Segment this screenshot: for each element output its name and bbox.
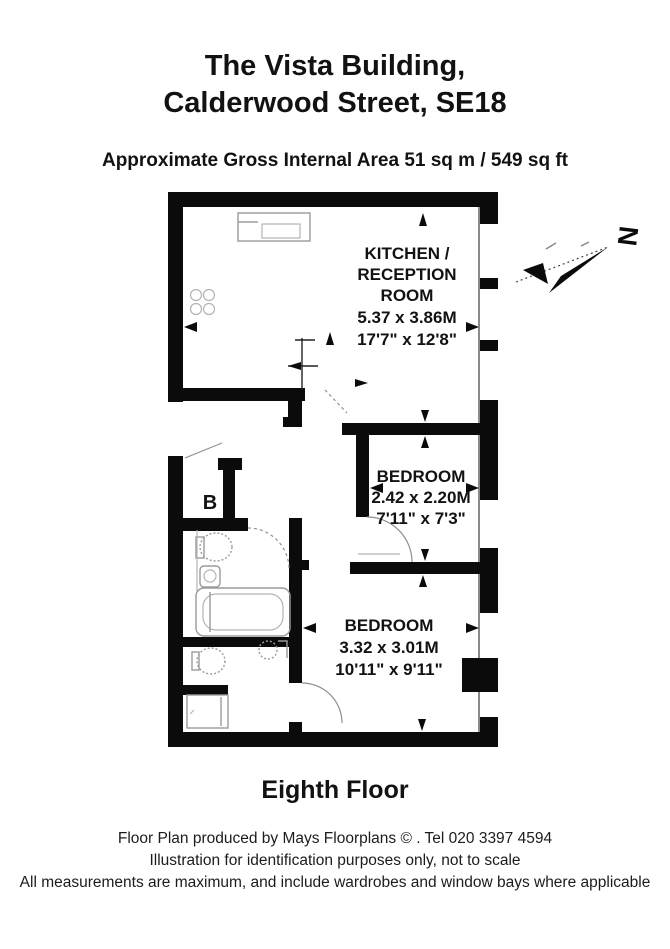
wall-segment [183,518,248,531]
footer-line-1: Floor Plan produced by Mays Floorplans ©… [0,828,670,850]
hob-ring-icon [204,304,215,315]
wall-segment [297,560,309,570]
wall-segment [168,732,498,747]
wall-segment [283,417,302,427]
floorplan-page: The Vista Building, Calderwood Street, S… [0,0,670,949]
hob-ring-icon [191,304,202,315]
bedroom1-dim-metric: 2.42 x 2.20M [371,488,470,507]
dim-arrow-up-icon [419,575,427,587]
window-mullion [480,340,498,351]
bedroom2-dim-metric: 3.32 x 3.01M [339,638,438,657]
bathtub-inner [203,594,283,630]
wall-segment [480,400,498,500]
compass-needle-icon [549,247,608,293]
wall-segment [480,548,498,613]
kitchen-label: ROOM [381,286,434,305]
north-arrow: N [516,224,644,293]
wall-segment [356,423,369,517]
room-labels: KITCHEN / RECEPTION ROOM 5.37 x 3.86M 17… [203,244,471,679]
dim-arrow-left-icon [303,623,316,633]
wall-segment [480,717,498,747]
dim-arrow-right-icon [355,379,368,387]
dim-arrow-right-icon [466,623,479,633]
basin-bowl [204,570,216,582]
kitchen-label: KITCHEN / [365,244,450,263]
bedroom1-dim-imperial: 7'11" x 7'3" [376,509,465,528]
wall-segment [350,562,480,574]
footer-line-2: Illustration for identification purposes… [0,850,670,872]
wall-segment [289,722,302,734]
wall-segment [168,192,183,402]
wall-segment [289,518,302,683]
hob-ring-icon [191,290,202,301]
closet-mark [190,710,194,714]
wall-segment [183,637,293,647]
footer: Floor Plan produced by Mays Floorplans ©… [0,828,670,894]
footer-line-3: All measurements are maximum, and includ… [0,872,670,894]
toilet-icon [200,533,232,561]
compass-tick [546,243,556,249]
bedroom2-dim-imperial: 10'11" x 9'11" [335,660,442,679]
dim-arrow-down-icon [421,549,429,561]
interior-walls [183,388,480,734]
compass-needle-icon [523,263,548,284]
hall-door-leaf [325,390,347,413]
hob-ring-icon [204,290,215,301]
floorplan-drawing: KITCHEN / RECEPTION ROOM 5.37 x 3.86M 17… [0,0,670,780]
toilet-icon [197,648,225,674]
basin [200,566,220,587]
bedroom2-door-arc [302,683,342,723]
dim-arrow-left-icon [184,322,197,332]
bedroom2-label: BEDROOM [345,616,434,635]
dim-arrow-down-icon [418,719,426,731]
kitchen-dim-metric: 5.37 x 3.86M [357,308,456,327]
dim-arrow-up-icon [326,332,334,345]
bathroom-door-arc [248,528,289,569]
wall-segment [168,192,498,207]
wall-segment [480,192,498,224]
wall-segment [168,456,183,747]
kitchen-label: RECEPTION [357,265,456,284]
dim-arrow-up-icon [419,213,427,226]
dim-arrow-right-icon [466,322,479,332]
dim-arrow-down-icon [421,410,429,422]
kitchen-dim-imperial: 17'7" x 12'8" [357,330,457,349]
wall-pillar [462,658,498,692]
entrance-door-leaf [185,443,222,458]
north-label: N [612,224,644,247]
kitchen-sink [262,224,300,238]
window-mullion [480,278,498,289]
floor-name: Eighth Floor [0,776,670,805]
bedroom1-label: BEDROOM [377,467,466,486]
compass-tick [581,242,589,246]
cupboard-label: B [203,492,217,514]
dim-arrow-up-icon [421,436,429,448]
wall-segment [183,388,305,401]
wall-segment [183,685,228,695]
wall-segment [223,458,235,522]
dim-arrow-left-icon [288,362,301,370]
kitchen-counter [238,213,310,241]
